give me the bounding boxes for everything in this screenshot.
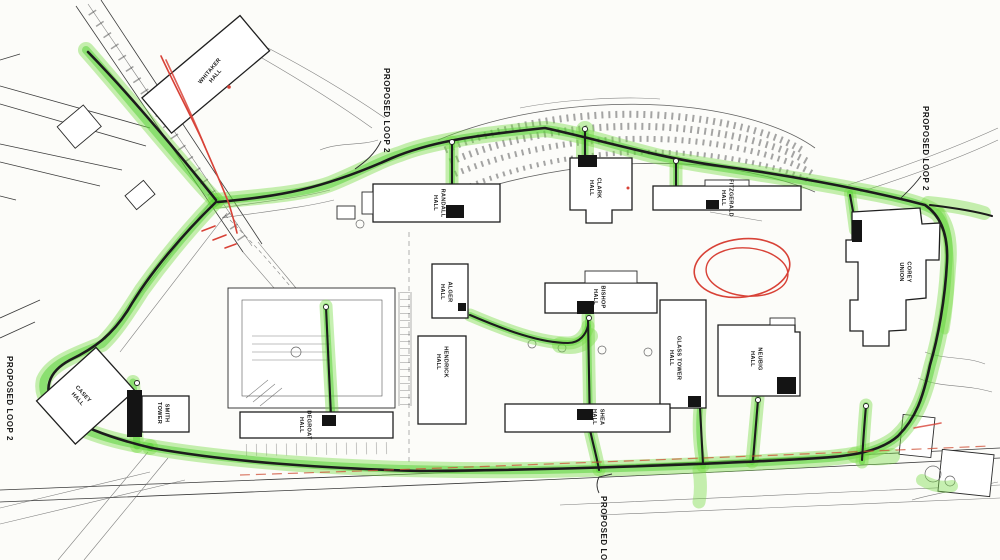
campus-utility-map: WHITAKERHALL RANDALLHALL CLARKHALL FITZG… <box>0 0 1000 560</box>
small-building-a <box>57 105 101 148</box>
red-ellipse-inner <box>704 245 790 300</box>
walkways <box>262 48 385 150</box>
proposed-loop-label-right: PROPOSED LOOP 2 <box>921 106 930 191</box>
vault-trench-bar <box>127 390 142 437</box>
building-label-shea: SHEAHALL <box>591 409 605 426</box>
parking-ticks <box>246 448 392 450</box>
building-neubig-notch <box>770 318 795 325</box>
svg-text:HALL: HALL <box>749 351 755 367</box>
central-complex-outline <box>228 288 395 408</box>
building-label-alger: ALGERHALL <box>439 282 453 303</box>
svg-text:HALL: HALL <box>720 190 726 206</box>
proposed-loop-label-bottom: PROPOSED LOOP 2 <box>599 496 608 560</box>
proposed-loop-label-left: PROPOSED LOOP 2 <box>5 356 14 441</box>
svg-text:GLASS TOWER: GLASS TOWER <box>676 336 682 380</box>
svg-text:TOWER: TOWER <box>156 402 162 424</box>
svg-text:SHEA: SHEA <box>599 409 605 426</box>
small-circle <box>356 220 364 228</box>
svg-text:COREY: COREY <box>906 261 912 282</box>
svg-text:NEUBIG: NEUBIG <box>757 347 763 370</box>
fitzgerald-leader-line <box>710 212 762 221</box>
svg-text:HALL: HALL <box>439 284 445 300</box>
small-building-b <box>125 180 155 209</box>
building-glass-tower <box>660 300 706 408</box>
svg-text:UNION: UNION <box>898 262 904 281</box>
building-fitzgerald <box>653 186 801 210</box>
svg-text:HALL: HALL <box>432 195 438 211</box>
svg-text:BISHOP: BISHOP <box>600 286 606 309</box>
site-plan-canvas: WHITAKERHALL RANDALLHALL CLARKHALL FITZG… <box>0 0 1000 560</box>
building-label-smith-tower: SMITHTOWER <box>156 402 170 424</box>
building-randall-step <box>362 192 373 214</box>
building-degroat <box>240 412 393 438</box>
svg-text:RANDALL: RANDALL <box>440 189 446 218</box>
building-label-clark: CLARKHALL <box>588 178 602 199</box>
svg-text:HALL: HALL <box>591 409 597 425</box>
svg-text:CLARK: CLARK <box>596 178 602 199</box>
svg-text:HALL: HALL <box>435 354 441 370</box>
svg-text:DEGROAT: DEGROAT <box>306 410 312 440</box>
svg-text:ALGER: ALGER <box>447 282 453 303</box>
svg-text:PROPOSED LOOP 2: PROPOSED LOOP 2 <box>599 496 608 560</box>
building-hendrick <box>418 336 466 424</box>
svg-text:PROPOSED LOOP 2: PROPOSED LOOP 2 <box>921 106 930 191</box>
building-fitzgerald-step <box>705 180 749 186</box>
proposed-loop-label-top: PROPOSED LOOP 2 <box>382 68 391 153</box>
svg-text:HALL: HALL <box>592 289 598 305</box>
svg-text:HALL: HALL <box>298 417 304 433</box>
svg-text:PROPOSED LOOP 2: PROPOSED LOOP 2 <box>382 68 391 153</box>
building-label-corey-union: COREYUNION <box>898 261 912 282</box>
svg-text:SMITH: SMITH <box>164 404 170 423</box>
red-dot-whitaker <box>227 85 231 89</box>
building-bishop-notch <box>585 271 637 283</box>
small-building-c <box>337 206 355 219</box>
red-dot-mid <box>627 187 630 190</box>
svg-text:PROPOSED LOOP 2: PROPOSED LOOP 2 <box>5 356 14 441</box>
svg-text:FITZGERALD: FITZGERALD <box>728 179 734 217</box>
svg-text:HENDRICK: HENDRICK <box>443 346 449 378</box>
svg-text:HALL: HALL <box>588 180 594 196</box>
edge-marks <box>0 54 40 338</box>
svg-text:HALL: HALL <box>668 350 674 366</box>
